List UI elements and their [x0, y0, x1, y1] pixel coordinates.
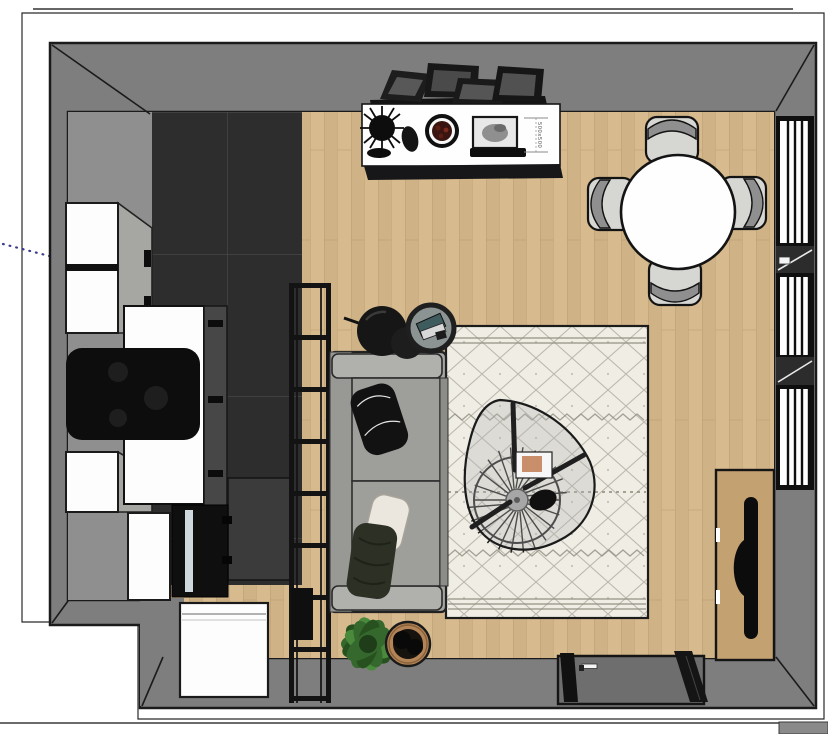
window-handle-icon[interactable]	[779, 257, 790, 264]
washing-machine[interactable]	[180, 603, 268, 697]
console-table[interactable]: 500x500	[360, 63, 563, 180]
side-table[interactable]	[408, 305, 454, 351]
dimension-label: 500x500	[536, 122, 542, 149]
photo-frame[interactable]	[470, 117, 526, 157]
sofa[interactable]	[330, 352, 448, 612]
room-plan-canvas: 500x500	[0, 0, 828, 734]
coffee-table-book[interactable]	[516, 452, 552, 478]
storage-basket[interactable]	[386, 622, 430, 666]
speaker-box[interactable]	[291, 588, 313, 640]
window-right[interactable]	[776, 116, 814, 490]
cabinet-handle-icon	[144, 250, 151, 267]
corner-block	[779, 722, 828, 734]
alcove-wall-patch	[140, 598, 184, 706]
tv-sideboard[interactable]	[716, 470, 774, 660]
cooktop[interactable]	[66, 348, 200, 440]
decor-bowl[interactable]	[427, 116, 457, 146]
room-plan-scene: 500x500	[0, 0, 828, 734]
entry-door[interactable]	[558, 651, 708, 704]
dining-table[interactable]	[621, 155, 735, 269]
